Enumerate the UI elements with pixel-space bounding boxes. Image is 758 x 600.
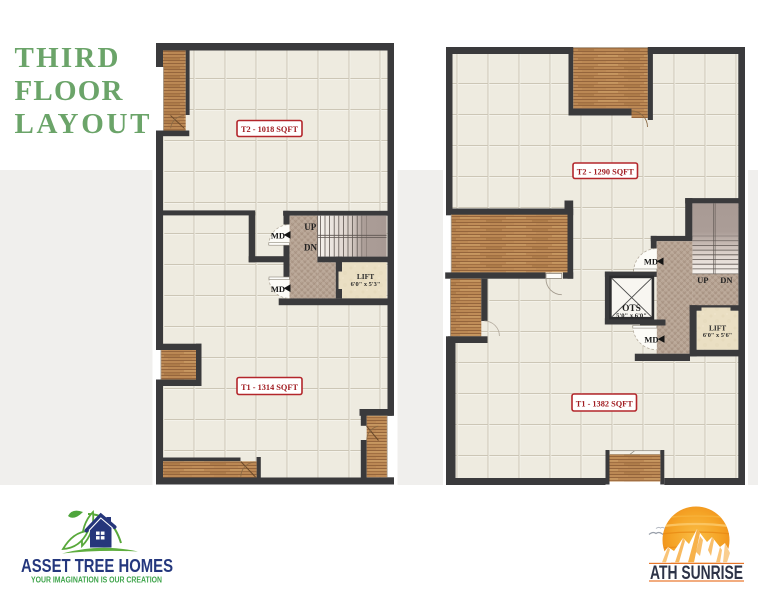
- svg-text:MD: MD: [644, 335, 658, 345]
- svg-text:5'0" x 6'0": 5'0" x 6'0": [616, 313, 647, 320]
- svg-text:THIRD: THIRD: [15, 42, 119, 74]
- svg-text:UP: UP: [304, 222, 316, 232]
- svg-text:LIFT: LIFT: [357, 272, 374, 281]
- svg-text:6'0" x 5'3": 6'0" x 5'3": [351, 281, 381, 288]
- svg-text:DN: DN: [304, 242, 317, 252]
- svg-text:T2 - 1290 SQFT: T2 - 1290 SQFT: [577, 167, 634, 177]
- svg-text:DN: DN: [720, 275, 733, 285]
- svg-text:YOUR IMAGINATION IS OUR CREATI: YOUR IMAGINATION IS OUR CREATION: [31, 576, 162, 585]
- svg-text:UP: UP: [697, 275, 708, 285]
- svg-text:ASSET TREE HOMES: ASSET TREE HOMES: [21, 555, 173, 576]
- svg-text:FLOOR: FLOOR: [15, 75, 124, 107]
- svg-text:T1 - 1314 SQFT: T1 - 1314 SQFT: [241, 382, 298, 392]
- svg-text:T1 - 1382 SQFT: T1 - 1382 SQFT: [576, 398, 633, 408]
- svg-text:MD: MD: [644, 257, 658, 267]
- svg-text:T2 - 1018 SQFT: T2 - 1018 SQFT: [241, 124, 298, 134]
- svg-text:MD: MD: [271, 231, 285, 241]
- svg-text:MD: MD: [271, 284, 285, 294]
- svg-text:6'0" x 5'6": 6'0" x 5'6": [703, 332, 732, 339]
